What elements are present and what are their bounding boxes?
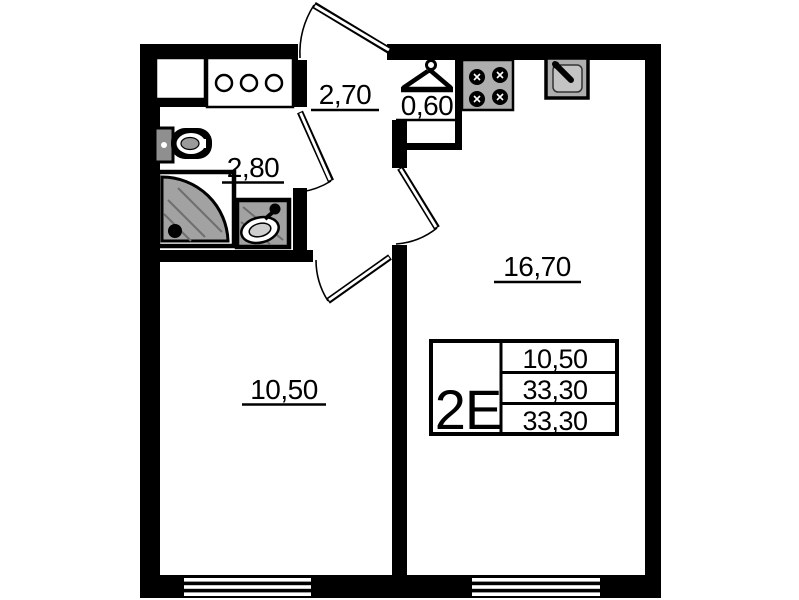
wardrobe-area-label: 0,60 [401,90,454,121]
left-wall [140,44,160,575]
window-pane-line [184,592,311,596]
room-partition-wall [392,245,407,575]
window-pane-line [472,585,600,589]
shower-drain [168,224,182,238]
washbasin-icon [237,200,289,247]
right-wall [645,44,661,598]
niche-bottom-wall [392,143,462,150]
knob-icon [266,75,282,91]
bathroom-area-label: 2,80 [227,152,280,183]
door-swing-arc [316,260,328,301]
knob-icon [216,75,232,91]
window-pane-line [184,578,311,582]
door-leaf-inner [401,169,437,227]
door-leaf-inner [301,113,331,180]
hanger-icon [401,61,453,90]
sink-faucet-base [553,62,560,69]
living-area-value: 10,50 [522,344,587,374]
bathroom-right-wall-upper [293,60,307,107]
door-leaf-inner [329,258,389,301]
room-door [316,257,390,301]
kitchen-sink-icon [546,58,588,98]
toilet-flush-mark [201,139,206,148]
bathroom-cabinet [207,58,293,107]
unit-type-label: 2Е [435,378,502,441]
top-wall-right [387,44,645,60]
hallway-area-label: 2,70 [319,79,372,110]
door-leaf-inner [315,6,389,50]
washing-machine [152,58,207,107]
window-pane-line [472,592,600,596]
bathroom-door [300,112,331,192]
hanger-hook [427,61,436,70]
window-pane-line [472,578,600,582]
entrance-door [300,5,390,58]
toilet-tank-button [161,142,167,148]
knob-icon [241,75,257,91]
hanger-arm-left [403,71,428,88]
window-right [472,578,600,596]
stove-icon [462,60,513,110]
toilet-icon [155,128,212,162]
toilet-bowl-inner [181,138,199,150]
kitchen-living-area-label: 16,70 [503,251,571,282]
bathroom-bottom-wall [140,250,313,262]
floor-plan-canvas: 2,70 0,60 2,80 16,70 10,50 2Е 10,50 33,3… [0,0,799,600]
divider-wall-stub [152,98,207,107]
washing-machine-body [156,58,205,99]
floor-plan: 2,70 0,60 2,80 16,70 10,50 2Е 10,50 33,3… [0,0,799,600]
overall-area-value: 33,30 [522,406,587,436]
door-swing-arc [300,5,314,58]
kitchen-door [396,168,437,244]
hanger-arm-right [431,71,451,88]
info-table: 2Е 10,50 33,30 33,30 [431,341,617,441]
window-pane-line [184,585,311,589]
total-area-value: 33,30 [522,375,587,405]
window-left [184,578,311,596]
room-area-label: 10,50 [250,374,318,405]
door-swing-arc [396,228,437,244]
